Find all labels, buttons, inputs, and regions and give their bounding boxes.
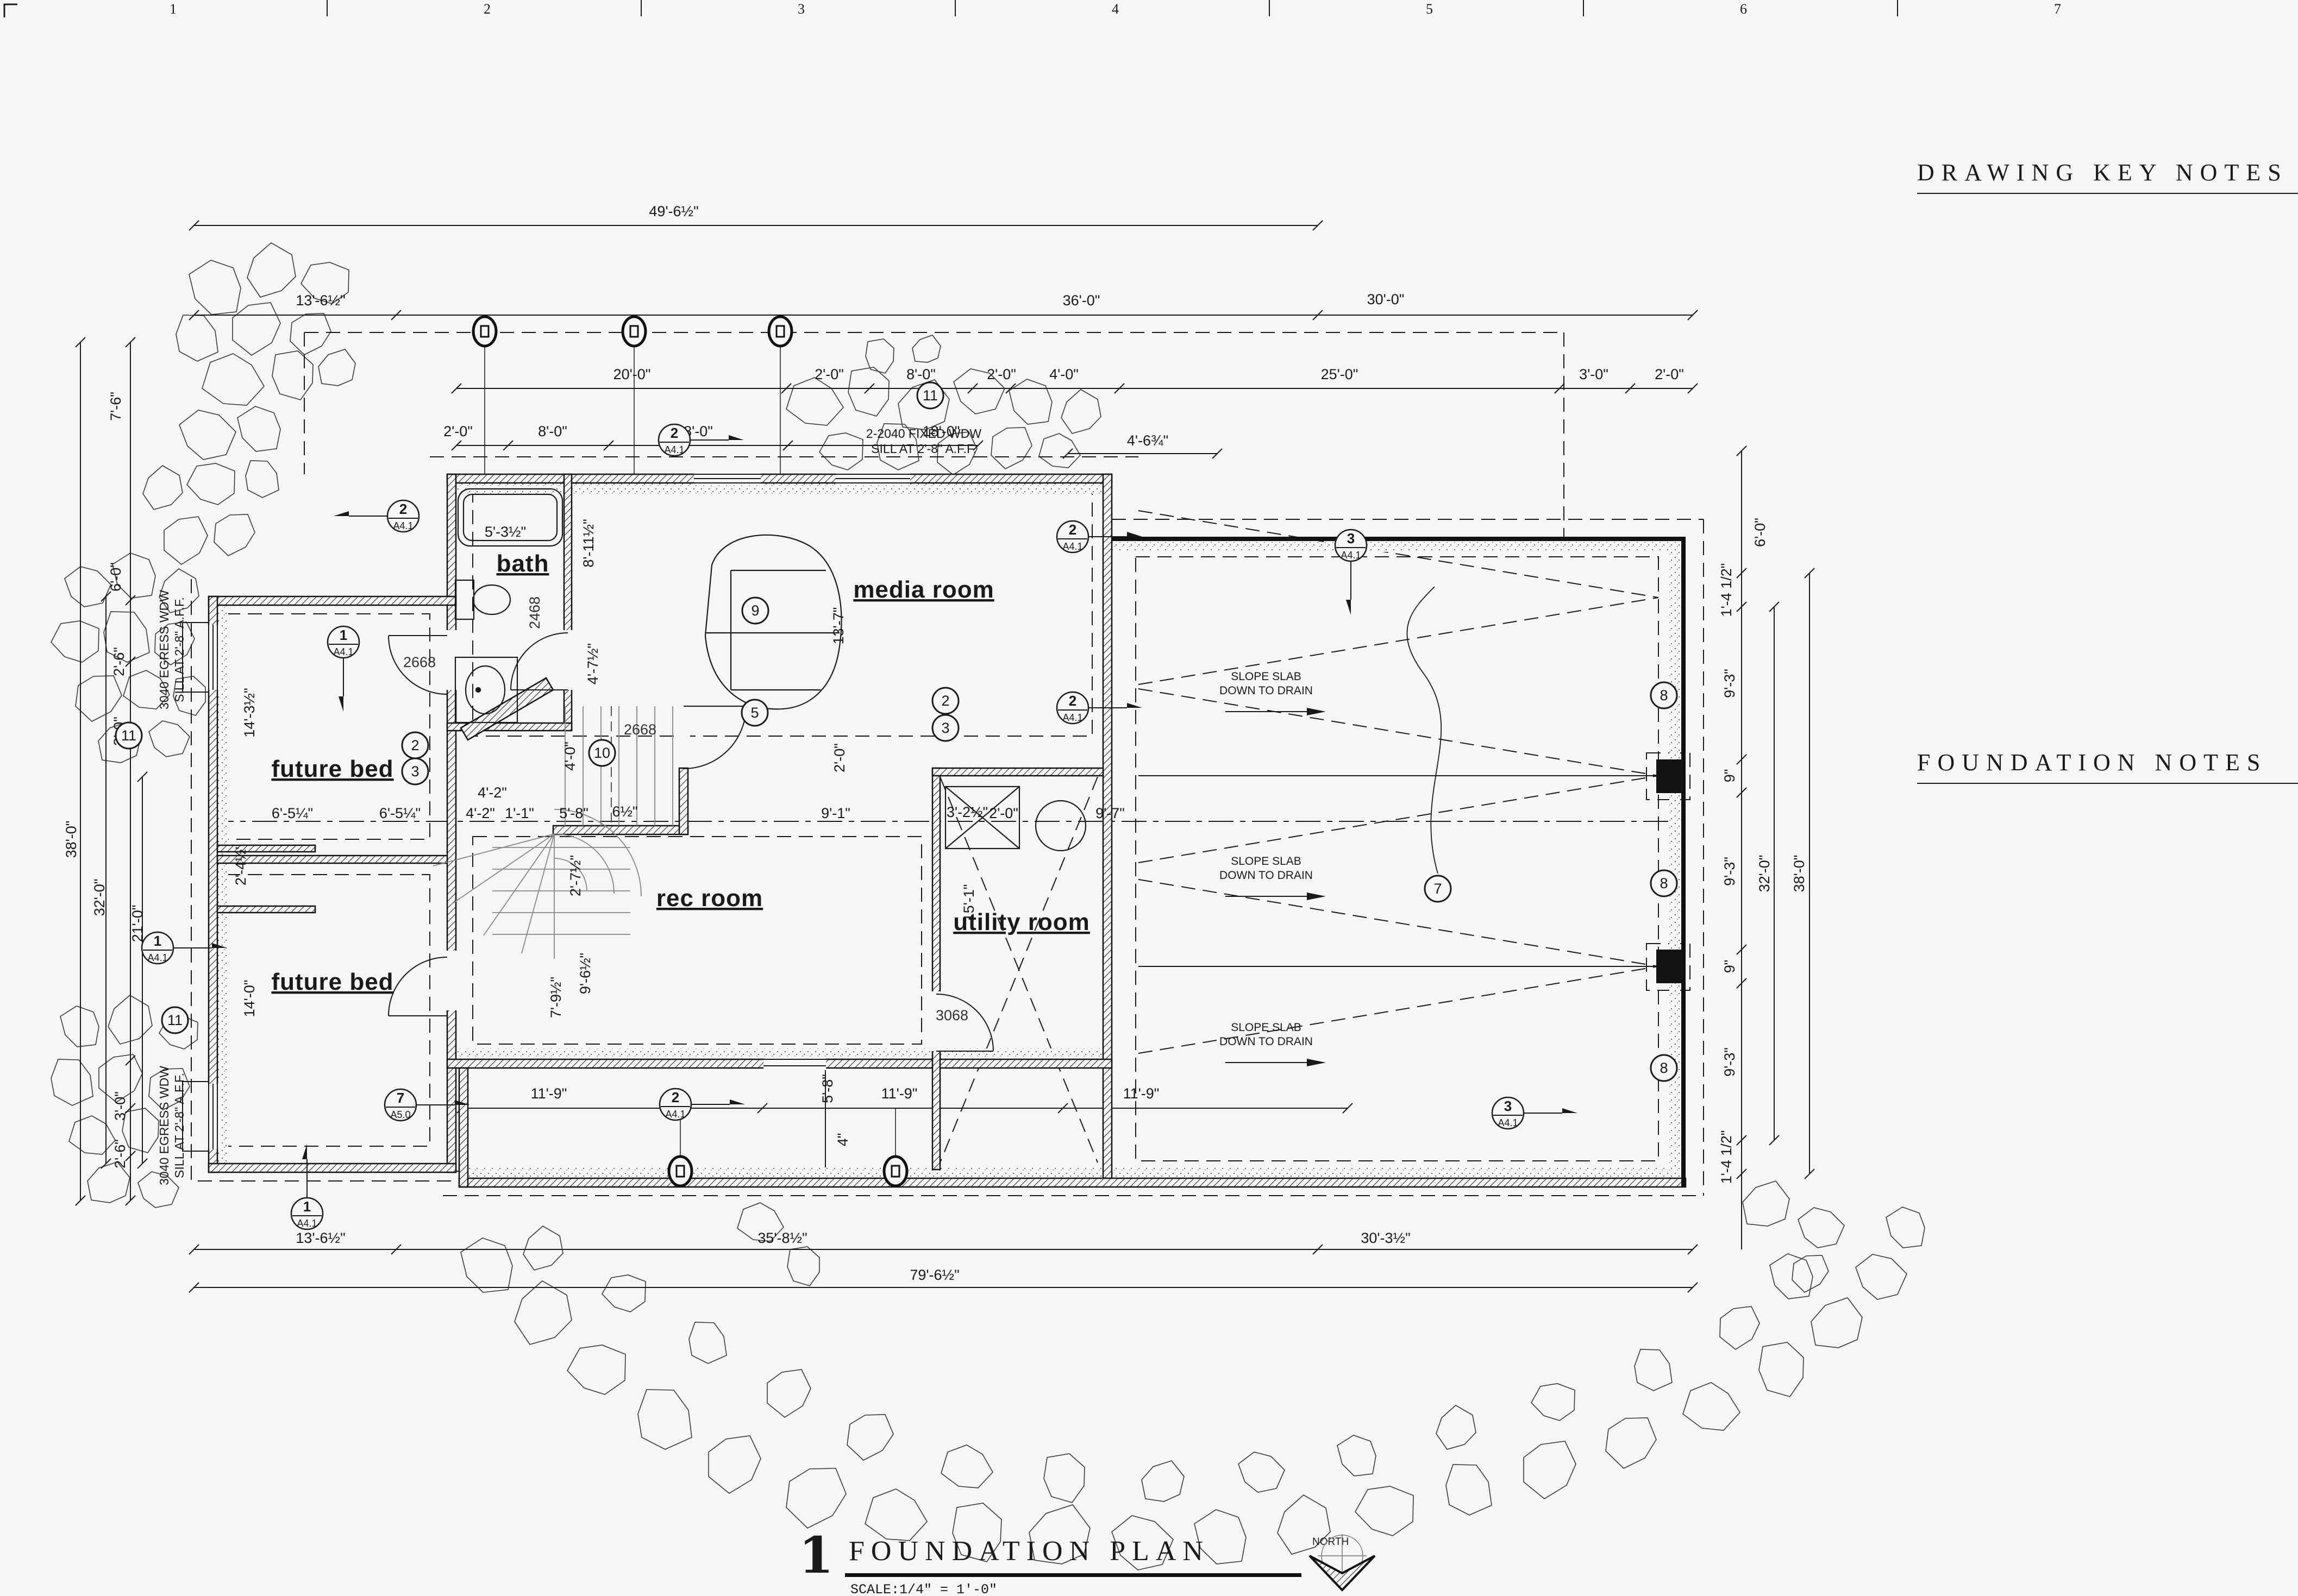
boulder <box>912 335 941 362</box>
svg-text:9: 9 <box>751 602 759 619</box>
svg-text:8: 8 <box>1660 1060 1668 1076</box>
dimension-label: 13'-6½" <box>296 1230 345 1246</box>
boulder <box>179 410 236 460</box>
dimension-label: 4'-0" <box>562 742 578 771</box>
boulder <box>1770 1254 1813 1299</box>
grid-column-label: 5 <box>1426 1 1433 17</box>
title-underline <box>845 1573 1301 1577</box>
svg-text:2-2040 FIXED WDW: 2-2040 FIXED WDW <box>866 426 981 441</box>
svg-text:A4.1: A4.1 <box>1341 550 1361 561</box>
boulder <box>1886 1207 1925 1248</box>
svg-text:1: 1 <box>154 933 161 949</box>
dimension-label: 20'-0" <box>613 366 651 382</box>
slope-slab-label: SLOPE SLABDOWN TO DRAIN <box>1219 855 1326 900</box>
window-annotation: 2-2040 FIXED WDWSILL AT 2'-8" A.F.F. <box>866 426 981 456</box>
door-size-label: 3068 <box>936 1007 968 1023</box>
dimension-label: 3'-2½" <box>947 804 988 820</box>
boulder <box>65 567 111 607</box>
dimension-label: 79'-6½" <box>910 1267 959 1283</box>
dimension-label: 9'-3" <box>1721 1047 1738 1077</box>
svg-text:3: 3 <box>1504 1098 1512 1114</box>
dimension-label: 7'-9½" <box>548 977 564 1018</box>
boulder <box>51 621 99 662</box>
svg-text:1: 1 <box>303 1198 311 1215</box>
room-label: bath <box>497 550 549 577</box>
dimension-label: 2'-6" <box>112 1139 128 1168</box>
window-annotation: 3040 EGRESS WDWSILL AT 2'-8" A.F.F. <box>157 1066 186 1185</box>
boulder <box>1759 1342 1804 1397</box>
dimension-label: 13'-7" <box>830 607 847 645</box>
slope-slab-label: SLOPE SLABDOWN TO DRAIN <box>1219 1021 1326 1066</box>
svg-text:SILL AT 2'-8" A.F.F.: SILL AT 2'-8" A.F.F. <box>172 1073 186 1178</box>
dimension-label: 4'-2" <box>478 784 507 801</box>
dimension-label: 6'-0" <box>108 562 124 592</box>
boulder <box>189 260 241 315</box>
dimension-label: 2'-0" <box>987 366 1016 382</box>
window-annotation: 3040 EGRESS WDWSILL AT 2'-8" A.F.F. <box>157 590 186 709</box>
grid-column-label: 7 <box>2054 1 2061 17</box>
boulder <box>515 1281 572 1344</box>
boulder <box>1531 1384 1575 1421</box>
boulder <box>941 1445 993 1488</box>
boulder <box>1044 1454 1085 1503</box>
dimension-label: 4" <box>835 1133 851 1147</box>
boulder <box>1811 1298 1862 1348</box>
boulder <box>786 1468 846 1528</box>
boulder <box>1142 1461 1184 1501</box>
key-note-bubble: 3 <box>402 758 428 784</box>
key-note-bubble: 10 <box>589 740 615 766</box>
dimension-label: 6'-0" <box>1752 518 1768 547</box>
dimension-label: 4'-2" <box>466 805 495 821</box>
key-note-bubble: 7 <box>1425 876 1451 902</box>
boulder <box>290 313 331 355</box>
key-note-bubble: 9 <box>742 598 768 624</box>
svg-text:A4.1: A4.1 <box>333 646 353 657</box>
dimension-label: 13'-6½" <box>296 292 345 309</box>
dimension-label: 8'-11½" <box>580 519 597 567</box>
boulder <box>187 463 235 505</box>
key-note-bubble: 8 <box>1651 870 1677 896</box>
dimension-label: 9'-1" <box>821 805 850 821</box>
dimension-label: 4'-7½" <box>585 643 601 684</box>
boulder <box>847 1415 893 1460</box>
dimension-label: 2'-7½" <box>567 855 584 896</box>
dimension-label: 11'-9" <box>1123 1085 1160 1102</box>
svg-text:2: 2 <box>399 501 407 517</box>
boulder <box>143 466 183 510</box>
room-label: future bed <box>271 969 393 995</box>
dimension-label: 30'-0" <box>1367 291 1405 307</box>
svg-text:A4.1: A4.1 <box>665 1109 685 1120</box>
boulder <box>567 1345 625 1394</box>
svg-text:A4.1: A4.1 <box>1062 541 1082 552</box>
garage-walls <box>1112 537 1686 1187</box>
svg-text:11: 11 <box>121 727 136 744</box>
svg-text:5: 5 <box>750 705 759 721</box>
dimension-label: 30'-3½" <box>1361 1230 1410 1246</box>
dimension-label: 9" <box>1721 769 1738 783</box>
drawing-scale: SCALE:1/4" = 1'-0" <box>850 1582 997 1596</box>
svg-text:10: 10 <box>594 745 610 761</box>
grid-column-label: 6 <box>1740 1 1747 17</box>
boulder <box>149 721 190 757</box>
dimension-label: 3'-0" <box>112 1091 128 1121</box>
boulder <box>202 354 264 405</box>
svg-text:1: 1 <box>340 627 347 643</box>
wood-column-symbol <box>669 1157 692 1186</box>
grid-column-label: 2 <box>484 1 491 17</box>
dimension-label: 2'-6" <box>111 647 127 676</box>
dimension-label: 7'-6" <box>108 392 124 421</box>
grid-column-label: 1 <box>170 1 177 17</box>
section-marker: 2A4.1 <box>334 500 419 532</box>
svg-text:2: 2 <box>1069 521 1076 538</box>
dimension-label: 49'-6½" <box>649 203 698 219</box>
dimension-label: 9" <box>1721 960 1738 973</box>
boulder <box>523 1226 563 1270</box>
boulder <box>1606 1418 1656 1468</box>
svg-text:DOWN TO DRAIN: DOWN TO DRAIN <box>1219 684 1313 697</box>
room-label: media room <box>853 576 994 603</box>
key-note-bubble: 8 <box>1651 1055 1677 1081</box>
section-marker: 2A4.1 <box>1057 692 1142 724</box>
boulder <box>1720 1306 1759 1349</box>
dimension-label: 36'-0" <box>1063 292 1100 309</box>
svg-text:3: 3 <box>1347 530 1355 546</box>
dimension-label: 9'-7" <box>1095 805 1125 821</box>
key-note-bubble: 11 <box>162 1007 188 1033</box>
key-note-bubble: 3 <box>932 715 959 741</box>
boulder <box>1446 1465 1492 1515</box>
foundation-notes-panel: FOUNDATION NOTES <box>1917 749 2298 798</box>
boulder <box>233 303 280 355</box>
door-swings <box>389 633 993 1051</box>
dimension-label: 5'-8" <box>819 1074 836 1103</box>
corner-mark <box>4 4 17 17</box>
dimension-label: 1'-1" <box>505 805 534 821</box>
boulder <box>1792 1255 1829 1292</box>
key-note-bubble: 8 <box>1651 682 1677 708</box>
dimension-label: 4'-6¾" <box>1127 432 1168 449</box>
detail-number: 1 <box>799 1531 834 1580</box>
svg-text:7: 7 <box>1433 881 1442 897</box>
svg-text:SLOPE SLAB: SLOPE SLAB <box>1231 1021 1301 1034</box>
boulder <box>1337 1435 1376 1476</box>
drawing-key-notes-panel: DRAWING KEY NOTES <box>1917 159 2298 208</box>
dimension-label: 14'-0" <box>241 980 258 1017</box>
dimension-label: 2'-4½" <box>233 844 249 885</box>
svg-text:11: 11 <box>167 1012 183 1028</box>
svg-text:A4.1: A4.1 <box>1062 712 1082 723</box>
boulder-in-media-room <box>705 535 841 709</box>
svg-text:A4.1: A4.1 <box>393 520 413 531</box>
boulder <box>767 1369 811 1417</box>
boulder <box>164 517 208 564</box>
grid-tick <box>1583 0 1584 16</box>
svg-text:2: 2 <box>1069 693 1076 709</box>
dimension-label: 8'-0" <box>906 366 936 382</box>
door-size-label: 2468 <box>527 596 543 629</box>
wood-column-symbol <box>769 317 792 346</box>
svg-text:SLOPE SLAB: SLOPE SLAB <box>1231 855 1301 868</box>
keynote-leader <box>1407 587 1441 874</box>
dimension-label: 5'-8" <box>559 805 588 821</box>
svg-text:8: 8 <box>1660 875 1668 891</box>
boulder <box>602 1275 646 1312</box>
room-label: rec room <box>656 885 763 912</box>
key-note-bubble: 5 <box>742 700 768 726</box>
north-label: NORTH <box>1312 1536 1349 1548</box>
boulder <box>272 351 313 400</box>
dimension-label: 38'-0" <box>1791 855 1807 893</box>
boulder <box>638 1390 692 1449</box>
dimension-label: 38'-0" <box>63 821 79 858</box>
dimension-label: 6'-5¼" <box>379 805 421 821</box>
svg-text:SILL AT 2'-8" A.F.F.: SILL AT 2'-8" A.F.F. <box>172 597 186 702</box>
grid-tick <box>1897 0 1898 16</box>
svg-text:A5.0: A5.0 <box>390 1109 410 1120</box>
dimension-label: 9'-6½" <box>577 953 593 994</box>
dimension-label: 6'-5¼" <box>272 805 313 821</box>
section-marker: 7A5.0 <box>385 1089 470 1121</box>
key-notes-title: DRAWING KEY NOTES <box>1917 159 2298 194</box>
boulder <box>787 1247 819 1286</box>
boulder <box>1039 433 1080 468</box>
boulder <box>247 243 296 297</box>
section-marker: 3A4.1 <box>1492 1097 1577 1129</box>
dimension-label: 2'-0" <box>443 423 473 439</box>
boulder <box>1856 1254 1907 1299</box>
dimension-label: 3'-0" <box>1579 366 1608 382</box>
grid-column-label: 3 <box>798 1 805 17</box>
dimension-label: 2'-0" <box>815 366 844 382</box>
svg-text:2: 2 <box>411 737 419 753</box>
boulder <box>1798 1208 1844 1248</box>
boulder <box>69 1116 115 1154</box>
boulder-outlines <box>51 243 1925 1570</box>
section-marker: 1A4.1 <box>328 626 359 712</box>
foundation-plan-drawing: 49'-6½"13'-6½"36'-0"30'-0"20'-0"2'-0"8'-… <box>0 0 2298 1596</box>
dimension-label: 21'-0" <box>129 905 146 942</box>
boulder <box>1524 1441 1576 1499</box>
svg-text:7: 7 <box>397 1090 404 1106</box>
boulder <box>176 315 218 361</box>
boulder <box>318 349 355 386</box>
dimension-label: 1'-4 1/2" <box>1718 1130 1735 1184</box>
boulder <box>60 1006 99 1047</box>
grid-tick <box>327 0 328 16</box>
fixtures <box>455 489 1086 851</box>
boulder <box>1436 1405 1476 1449</box>
svg-text:A4.1: A4.1 <box>664 444 684 455</box>
dimension-label: 35'-8½" <box>757 1230 807 1246</box>
svg-text:SLOPE SLAB: SLOPE SLAB <box>1231 670 1301 683</box>
boulder <box>709 1436 761 1493</box>
boulder <box>848 367 889 416</box>
room-label: future bed <box>271 756 393 782</box>
key-note-bubble: 2 <box>402 732 428 758</box>
svg-text:DOWN TO DRAIN: DOWN TO DRAIN <box>1219 869 1313 882</box>
section-marker: 2A4.1 <box>660 1089 745 1120</box>
reference-lines <box>825 776 1658 1184</box>
north-arrow: NORTH <box>1296 1533 1388 1596</box>
toilet-bowl <box>473 585 510 614</box>
svg-text:A4.1: A4.1 <box>297 1218 317 1229</box>
dimension-label: 2'-0" <box>831 743 848 772</box>
door-size-label: 2668 <box>403 654 436 670</box>
door-size-label: 2668 <box>624 721 656 738</box>
key-note-bubble: 11 <box>116 722 142 749</box>
dimension-label: 1'-4 1/2" <box>1718 563 1735 617</box>
wood-column-symbol <box>623 317 646 346</box>
boulder <box>76 676 122 721</box>
dimension-label: 8'-0" <box>538 423 567 439</box>
dimension-label: 4'-0" <box>1049 366 1079 382</box>
svg-text:A4.1: A4.1 <box>1498 1117 1518 1128</box>
svg-text:SILL AT 2'-8" A.F.F.: SILL AT 2'-8" A.F.F. <box>871 442 976 456</box>
boulder <box>1635 1349 1672 1391</box>
grid-tick <box>1269 0 1270 16</box>
dimension-label: 32'-0" <box>91 879 108 916</box>
dimension-label: 11'-9" <box>531 1085 567 1102</box>
boulder <box>51 1059 93 1105</box>
boulder <box>1009 379 1052 424</box>
svg-text:3040 EGRESS WDW: 3040 EGRESS WDW <box>157 590 171 709</box>
svg-text:8: 8 <box>1660 687 1668 703</box>
key-note-bubble: 11 <box>917 382 943 409</box>
dimension-label: 5'-3½" <box>485 524 526 540</box>
svg-text:11: 11 <box>923 387 938 404</box>
drawing-title: FOUNDATION PLAN <box>849 1535 1210 1567</box>
room-label: utility room <box>953 909 1090 935</box>
boulder <box>1743 1181 1789 1226</box>
dimension-label: 11'-9" <box>881 1085 918 1102</box>
boulder <box>461 1238 512 1292</box>
boulder <box>819 433 863 470</box>
dimension-label: 9'-3" <box>1721 669 1738 698</box>
boulder <box>866 339 894 373</box>
section-marker: 1A4.1 <box>291 1144 323 1229</box>
svg-text:3: 3 <box>941 720 949 736</box>
boulder <box>1238 1452 1285 1492</box>
grid-tick <box>955 0 956 16</box>
svg-text:DOWN TO DRAIN: DOWN TO DRAIN <box>1219 1035 1313 1048</box>
svg-text:2: 2 <box>941 693 949 709</box>
svg-text:A4.1: A4.1 <box>147 952 167 963</box>
boulder <box>689 1322 727 1363</box>
dimension-label: 9'-3" <box>1721 857 1738 886</box>
grid-column-label: 4 <box>1112 1 1119 17</box>
wood-column-symbol <box>884 1157 907 1186</box>
boulder <box>786 378 843 425</box>
boulder <box>237 406 280 451</box>
svg-text:2: 2 <box>671 425 678 441</box>
foundation-notes-title: FOUNDATION NOTES <box>1917 749 2298 784</box>
dimension-label: 6½" <box>612 803 637 820</box>
section-marker: 3A4.1 <box>1335 530 1367 615</box>
svg-text:3: 3 <box>411 763 419 780</box>
boulder <box>246 461 279 498</box>
key-note-bubble: 2 <box>932 688 959 714</box>
dimension-label: 14'-3½" <box>241 688 258 737</box>
grid-tick <box>641 0 642 16</box>
toilet-tank <box>455 580 474 619</box>
boulder <box>1061 389 1101 433</box>
dimension-label: 25'-0" <box>1321 366 1358 382</box>
dimension-label: 2'-0" <box>1655 366 1684 382</box>
dimension-label: 32'-0" <box>1756 855 1773 893</box>
slope-slab-label: SLOPE SLABDOWN TO DRAIN <box>1219 670 1326 715</box>
svg-text:3040 EGRESS WDW: 3040 EGRESS WDW <box>157 1066 171 1185</box>
svg-text:2: 2 <box>672 1089 679 1105</box>
wood-column-symbol <box>473 317 496 346</box>
sink <box>466 666 505 714</box>
dimension-label: 2'-0" <box>989 805 1018 821</box>
boulder <box>214 514 255 556</box>
drawing-sheet: 49'-6½"13'-6½"36'-0"30'-0"20'-0"2'-0"8'-… <box>0 0 2298 1596</box>
boulder <box>1683 1383 1740 1430</box>
boulder <box>991 428 1032 469</box>
